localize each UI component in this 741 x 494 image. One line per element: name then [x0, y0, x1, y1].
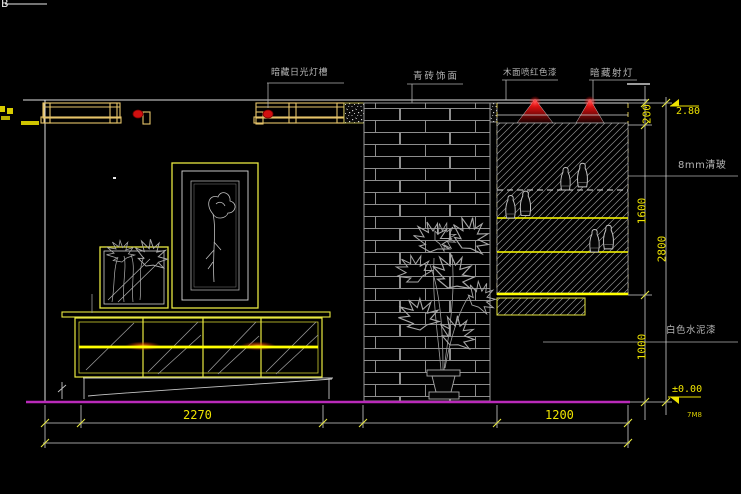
flower-sketch	[206, 193, 235, 282]
leaves-sketch	[108, 255, 158, 302]
painting-large	[172, 163, 258, 308]
cabinet-plinth	[58, 378, 333, 399]
cad-canvas: B 暗藏日光灯槽 青砖饰面 木面喷红色漆 暗藏射灯 8mm清玻 白色水泥漆 20…	[0, 0, 741, 494]
glass-display-panel	[497, 123, 628, 293]
wall-dot	[113, 177, 116, 179]
callout-white-cement: 白色水泥漆	[666, 326, 716, 336]
sheet-stamp-letter: B	[1, 0, 9, 9]
plot-frame-marks	[0, 4, 47, 125]
dim-1000: 1000	[637, 334, 648, 361]
downlight-icon	[133, 110, 143, 118]
brick-wall	[364, 103, 490, 401]
level-symbol-floor	[668, 397, 701, 404]
callout-spotlight: 暗藏射灯	[590, 69, 634, 79]
dim-2800: 2800	[657, 236, 668, 263]
callout-glass: 8mm清玻	[678, 161, 726, 171]
level-floor-value: ±0.00	[672, 385, 702, 395]
dim-1200: 1200	[545, 409, 574, 421]
callout-brick-finish: 青砖饰面	[413, 72, 459, 82]
dim-1600: 1600	[637, 198, 648, 225]
level-ceiling-value: 2.80	[676, 107, 700, 117]
callout-red-wood: 木面喷红色漆	[503, 69, 557, 78]
bottom-dimensions	[41, 405, 632, 448]
dim-200: 200	[642, 104, 653, 124]
dim-2270: 2270	[183, 409, 212, 421]
beam-section-block	[344, 103, 365, 123]
base-ledge	[497, 298, 585, 315]
downlight-icon	[263, 110, 273, 118]
level-symbol-ceiling	[670, 99, 699, 106]
display-unit	[497, 96, 628, 315]
tv-cabinet	[58, 312, 333, 399]
painting-small	[100, 236, 171, 308]
plot-ref-stamp: 7M8	[687, 412, 702, 419]
callout-light-trough: 暗藏日光灯槽	[271, 69, 328, 78]
